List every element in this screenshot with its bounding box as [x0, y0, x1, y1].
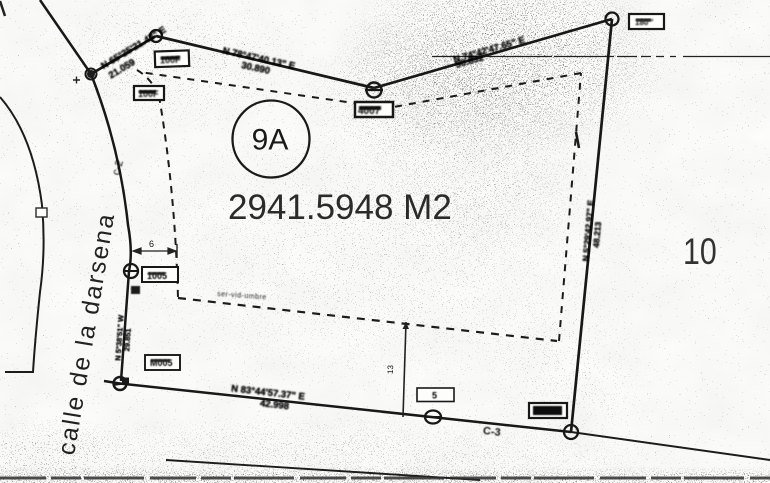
- svg-text:C-3: C-3: [482, 425, 501, 439]
- svg-text:2941.5948 M2: 2941.5948 M2: [228, 188, 452, 227]
- svg-text:5: 5: [432, 391, 437, 401]
- svg-text:29.851: 29.851: [122, 328, 133, 352]
- svg-text:6: 6: [149, 239, 154, 249]
- svg-text:9A: 9A: [252, 124, 289, 157]
- svg-text:10: 10: [683, 231, 717, 273]
- svg-text:13: 13: [386, 364, 395, 374]
